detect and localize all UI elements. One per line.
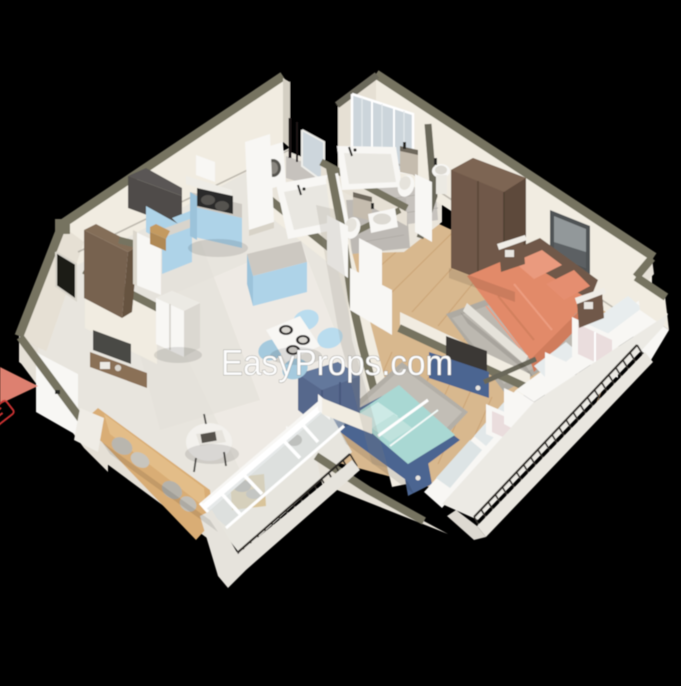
svg-text:EasyProps.com: EasyProps.com bbox=[221, 342, 453, 383]
